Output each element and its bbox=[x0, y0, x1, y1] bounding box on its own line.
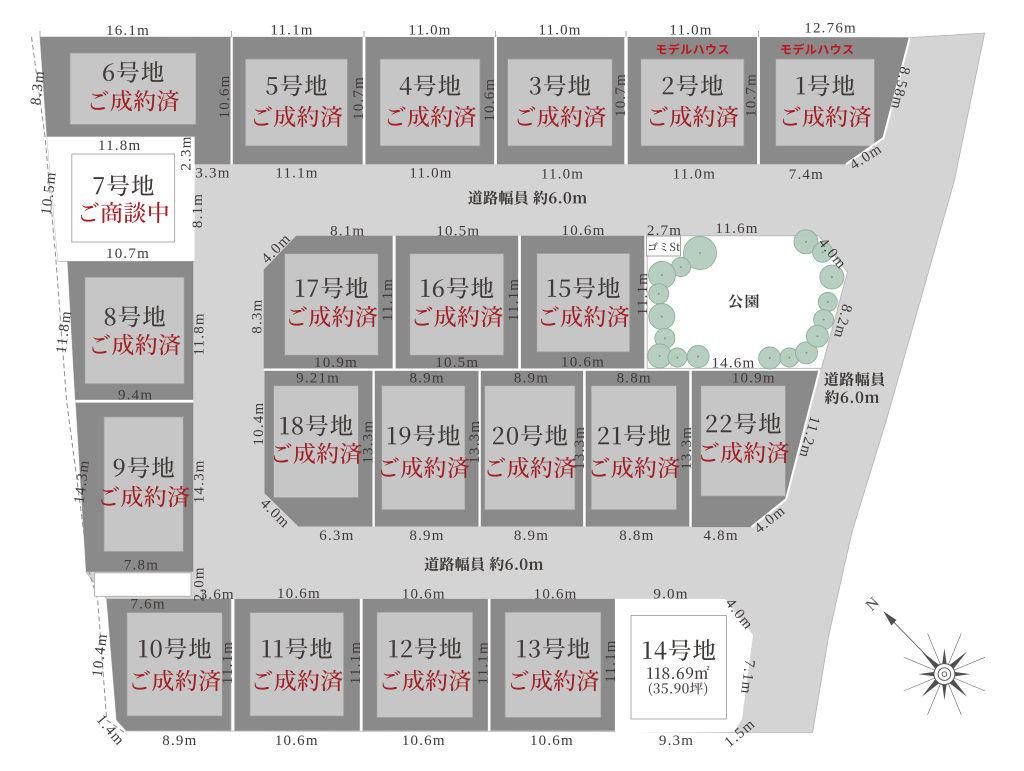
svg-text:11.6m: 11.6m bbox=[715, 221, 758, 237]
svg-text:10.6m: 10.6m bbox=[562, 223, 606, 239]
svg-text:8.1m: 8.1m bbox=[330, 224, 365, 240]
svg-text:10.6m: 10.6m bbox=[402, 733, 446, 749]
svg-text:11.0m: 11.0m bbox=[538, 23, 581, 39]
svg-text:8.9m: 8.9m bbox=[514, 371, 549, 387]
svg-text:11.1m: 11.1m bbox=[270, 23, 313, 39]
svg-text:11.0m: 11.0m bbox=[409, 166, 452, 182]
svg-text:10.9m: 10.9m bbox=[314, 355, 358, 371]
svg-text:7.6m: 7.6m bbox=[130, 597, 165, 613]
svg-text:11.1m: 11.1m bbox=[275, 166, 318, 182]
svg-text:13.3m: 13.3m bbox=[572, 426, 588, 470]
svg-text:9.3m: 9.3m bbox=[659, 733, 694, 749]
svg-text:11.1m: 11.1m bbox=[603, 639, 619, 682]
svg-text:11.0m: 11.0m bbox=[408, 23, 451, 39]
svg-text:8.8m: 8.8m bbox=[617, 371, 652, 387]
svg-text:9.4m: 9.4m bbox=[118, 387, 153, 403]
svg-text:11.1m: 11.1m bbox=[475, 641, 491, 684]
svg-text:7.4m: 7.4m bbox=[789, 167, 824, 183]
svg-text:10.7m: 10.7m bbox=[351, 76, 367, 120]
svg-text:8.9m: 8.9m bbox=[514, 528, 549, 544]
svg-text:9.21m: 9.21m bbox=[296, 371, 340, 387]
svg-text:9.0m: 9.0m bbox=[653, 587, 688, 603]
svg-text:11.0m: 11.0m bbox=[669, 23, 712, 39]
svg-text:10.6m: 10.6m bbox=[217, 75, 233, 119]
svg-text:14.3m: 14.3m bbox=[191, 459, 207, 503]
svg-text:10.7m: 10.7m bbox=[743, 73, 759, 117]
svg-text:3.3m: 3.3m bbox=[195, 166, 230, 182]
svg-text:11.0m: 11.0m bbox=[541, 167, 584, 183]
svg-text:11.1m: 11.1m bbox=[380, 278, 396, 321]
svg-text:11.8m: 11.8m bbox=[191, 312, 207, 355]
svg-text:10.6m: 10.6m bbox=[482, 78, 498, 122]
svg-text:7.8m: 7.8m bbox=[124, 558, 159, 574]
svg-text:13.3m: 13.3m bbox=[361, 420, 377, 464]
svg-text:8.9m: 8.9m bbox=[162, 733, 197, 749]
svg-text:14.6m: 14.6m bbox=[711, 355, 755, 371]
svg-text:13.3m: 13.3m bbox=[467, 420, 483, 464]
svg-text:10.7m: 10.7m bbox=[613, 73, 629, 117]
svg-text:3.6m: 3.6m bbox=[200, 587, 235, 603]
svg-text:10.5m: 10.5m bbox=[436, 224, 480, 240]
svg-text:8.9m: 8.9m bbox=[409, 371, 444, 387]
svg-text:10.4m: 10.4m bbox=[251, 402, 267, 446]
svg-text:8.1m: 8.1m bbox=[190, 193, 206, 228]
svg-text:4.8m: 4.8m bbox=[703, 528, 738, 544]
svg-text:12.76m: 12.76m bbox=[804, 21, 857, 37]
svg-text:11.1m: 11.1m bbox=[220, 641, 236, 684]
svg-text:11.8m: 11.8m bbox=[98, 138, 141, 154]
svg-text:8.8m: 8.8m bbox=[619, 528, 654, 544]
svg-text:10.6m: 10.6m bbox=[277, 586, 321, 602]
svg-text:11.1m: 11.1m bbox=[348, 641, 364, 684]
svg-text:6.3m: 6.3m bbox=[319, 528, 354, 544]
svg-text:10.6m: 10.6m bbox=[561, 354, 605, 370]
svg-text:8.3m: 8.3m bbox=[250, 298, 266, 333]
svg-text:13.3m: 13.3m bbox=[679, 426, 695, 470]
svg-text:10.6m: 10.6m bbox=[530, 733, 574, 749]
svg-text:11.1m: 11.1m bbox=[635, 272, 651, 315]
svg-text:11.0m: 11.0m bbox=[673, 167, 716, 183]
svg-text:11.1m: 11.1m bbox=[506, 278, 522, 321]
svg-text:16.1m: 16.1m bbox=[106, 23, 150, 39]
svg-text:10.6m: 10.6m bbox=[402, 586, 446, 602]
svg-text:8.9m: 8.9m bbox=[409, 528, 444, 544]
svg-text:10.6m: 10.6m bbox=[534, 586, 578, 602]
svg-text:10.7m: 10.7m bbox=[106, 246, 150, 262]
svg-text:2.7m: 2.7m bbox=[647, 223, 682, 239]
svg-text:10.9m: 10.9m bbox=[732, 371, 776, 387]
svg-text:10.6m: 10.6m bbox=[275, 733, 319, 749]
svg-text:2.3m: 2.3m bbox=[179, 135, 195, 170]
svg-text:10.5m: 10.5m bbox=[435, 355, 479, 371]
